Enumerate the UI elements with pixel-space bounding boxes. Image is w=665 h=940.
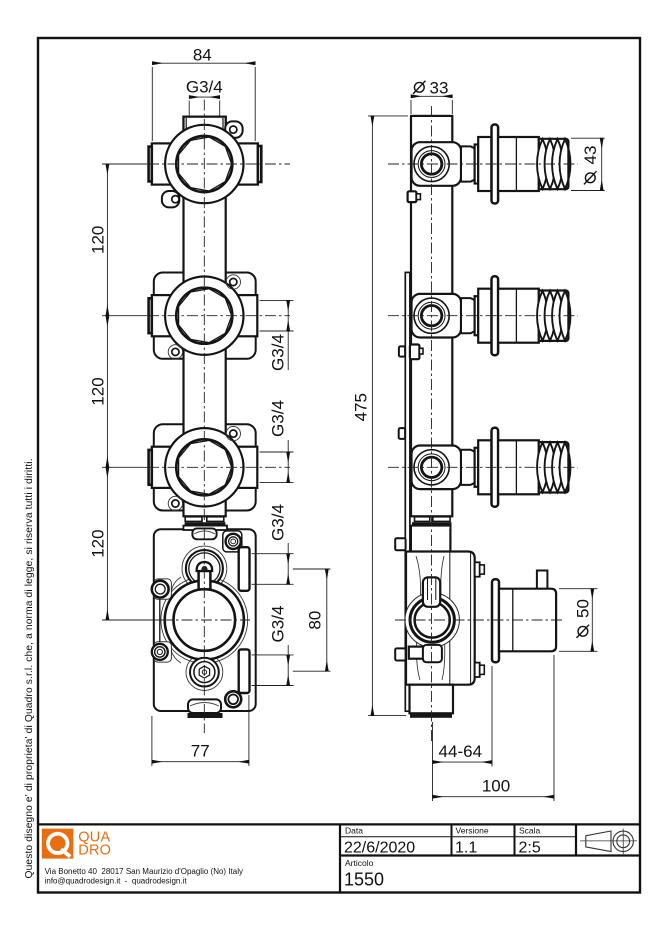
svg-text:Via Bonetto 40 28017 San Maur: Via Bonetto 40 28017 San Maurizio d'Opag… [45, 867, 243, 876]
svg-text:33: 33 [430, 79, 449, 98]
svg-text:1.1: 1.1 [455, 840, 477, 857]
svg-text:info@quadrodesign.it - quadr: info@quadrodesign.it - quadrodesign.it [45, 877, 188, 886]
svg-text:475: 475 [351, 393, 370, 421]
svg-text:G3/4: G3/4 [186, 78, 223, 97]
svg-text:120: 120 [88, 226, 107, 254]
svg-text:43: 43 [581, 146, 600, 165]
svg-text:22/6/2020: 22/6/2020 [344, 840, 415, 857]
svg-text:DRO: DRO [78, 843, 111, 859]
svg-text:G3/4: G3/4 [268, 606, 287, 643]
svg-text:120: 120 [88, 377, 107, 405]
svg-text:Scala: Scala [519, 826, 541, 836]
svg-text:G3/4: G3/4 [268, 400, 287, 437]
svg-text:Articolo: Articolo [345, 858, 374, 868]
svg-text:G3/4: G3/4 [268, 504, 287, 541]
svg-text:G3/4: G3/4 [268, 334, 287, 371]
svg-text:44-64: 44-64 [439, 742, 482, 761]
svg-text:100: 100 [482, 777, 510, 796]
svg-text:80: 80 [306, 611, 325, 630]
svg-text:50: 50 [574, 599, 593, 618]
svg-text:Data: Data [345, 826, 363, 836]
svg-text:Questo disegno e' di proprieta: Questo disegno e' di proprieta' di Quadr… [24, 458, 35, 878]
svg-text:120: 120 [88, 529, 107, 557]
svg-text:77: 77 [191, 742, 210, 761]
svg-text:2:5: 2:5 [519, 840, 541, 857]
svg-text:Versione: Versione [456, 826, 489, 836]
svg-text:84: 84 [193, 45, 212, 64]
svg-text:1550: 1550 [344, 870, 384, 890]
